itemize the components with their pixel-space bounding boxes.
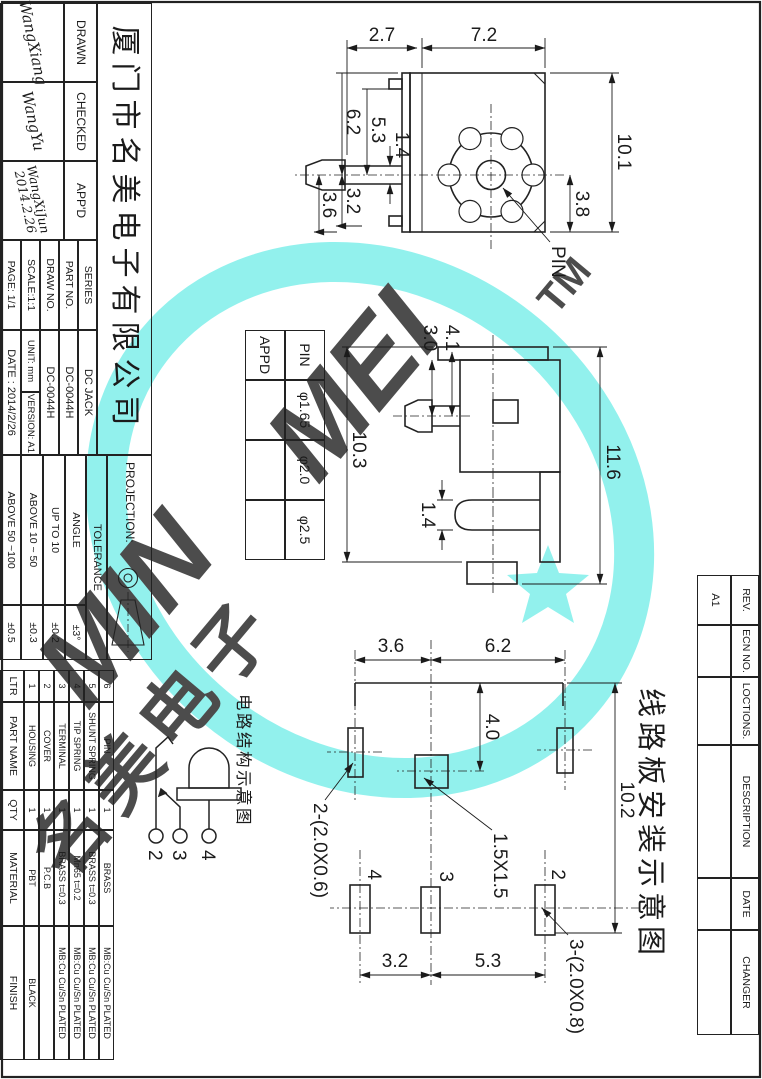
drawn-signature: WangXiang — [0, 3, 64, 82]
parts-item-row-qty: 1 — [99, 790, 114, 830]
checked-signature: WangYu — [0, 82, 64, 161]
tolerance-value-1: ±0.2 — [43, 605, 65, 660]
pcb-view-dimensions — [325, 660, 622, 975]
dim-11-6: 11.6 — [602, 444, 623, 480]
terminal-3-label: 3 — [168, 850, 189, 861]
checked-label: CHECKED — [64, 82, 97, 161]
dim-1-4a: 1.4 — [391, 132, 412, 159]
dim-6-2a: 6.2 — [342, 109, 363, 135]
parts-item-row-name: COVER — [39, 702, 54, 790]
date-value: DATE : 2014/2/26 — [0, 330, 21, 455]
parts-item-row-finish: BLACK — [24, 926, 39, 1060]
dim-3-8: 3.8 — [571, 191, 592, 217]
parts-item-row-material: BRASS t=0.3 — [54, 830, 69, 926]
side-view — [390, 335, 560, 595]
tolerance-value-3: ±0.5 — [0, 605, 21, 660]
dim-1-4b: 1.4 — [417, 502, 438, 529]
pin-table-empty-1 — [245, 380, 285, 440]
revision-header-4: DATE — [731, 878, 759, 930]
pin-table-d3: φ2.5 — [285, 500, 325, 560]
pad-3-label: 3 — [435, 871, 456, 882]
parts-item-row-qty: 1 — [84, 790, 99, 830]
drawing-sheet: MIN MEI TM 名美电子 厦门市名美电子有限公司 DRAWN CHECKE… — [0, 0, 762, 1079]
part-no-label: PART NO. — [59, 240, 78, 330]
parts-item-row-ltr: 6 — [99, 670, 114, 702]
pad-2-label: 2 — [547, 869, 568, 880]
draw-no-label: DRAW NO. — [40, 240, 59, 330]
tolerance-range-3: ABOVE 50 ~100 — [0, 455, 21, 605]
parts-item-row-material: BRASS t=0.3 — [84, 830, 99, 926]
revision-header-3: DESCRIPTION — [731, 745, 759, 878]
parts-item-row-qty: 1 — [69, 790, 84, 830]
projection-label: PROJECTION: — [123, 462, 136, 543]
parts-item-row-material: Mn65 t=0.2 — [69, 830, 84, 926]
pin-table-d1: φ1.65 — [285, 380, 325, 440]
parts-header-row-name: PART NAME — [0, 702, 24, 790]
parts-item-row-finish: MB:Cu Cu/Sn PLATED — [54, 926, 69, 1060]
slot-a-callout: 2-(2.0X0.6) — [309, 803, 330, 898]
parts-header-row-ltr: LTR — [0, 670, 24, 702]
checked-signature-text: WangYu — [18, 90, 46, 153]
dim-10-3: 10.3 — [348, 432, 369, 469]
tolerance-value-angle: ±3° — [65, 605, 86, 660]
pcb-view-dim-labels: 6.2 3.6 10.2 4.0 5.3 3.2 1.5X1.5 2-(2.0X… — [309, 636, 637, 1034]
revision-rev-value: A1 — [697, 575, 731, 625]
tolerance-header: TOLERANCE — [86, 455, 107, 660]
parts-item-row-finish: MB:Cu Cu/Sn PLATED — [84, 926, 99, 1060]
slot-b-callout: 3-(2.0X0.8) — [565, 939, 586, 1034]
tolerance-range-2: ABOVE 10 ~ 50 — [21, 455, 43, 605]
revision-header-2: LOCTIONS. — [731, 677, 759, 745]
circuit-diagram — [149, 737, 241, 843]
unit-value: UNIT: mm — [21, 330, 40, 392]
parts-item-row-finish — [39, 926, 54, 1060]
draw-no-value: DC-0044H — [40, 330, 59, 455]
appd-label: APP'D — [64, 161, 97, 240]
pad-4-label: 4 — [363, 869, 384, 880]
parts-header-row-finish: FINISH — [0, 926, 24, 1060]
revision-header-5: CHANGER — [731, 930, 759, 1035]
version-value: VERSION: A1 — [21, 392, 40, 455]
appd-signature-text: WangXiJun 2014.2.26 — [12, 164, 52, 237]
dim-6-2b: 6.2 — [485, 636, 511, 657]
parts-item-row-name: SHUNT SPRING — [84, 702, 99, 790]
tolerance-value-2: ±0.3 — [21, 605, 43, 660]
dim-3-2a: 3.2 — [342, 188, 363, 214]
series-label: SERIES — [78, 240, 97, 330]
revision-value-3 — [697, 745, 731, 878]
parts-item-row-qty: 1 — [24, 790, 39, 830]
dim-3-6b: 3.6 — [378, 636, 404, 657]
projection-cell: PROJECTION: — [107, 455, 152, 660]
parts-header-row-qty: QTY — [0, 790, 24, 830]
dim-7-2: 7.2 — [471, 25, 497, 46]
page-value: PAGE: 1/1 — [0, 240, 21, 330]
parts-item-row-qty: 1 — [39, 790, 54, 830]
pin-table-row1-label: PIN — [285, 330, 325, 380]
company-name: 厦门市名美电子有限公司 — [97, 3, 152, 455]
terminal-4-label: 4 — [197, 850, 218, 861]
pcb-view — [327, 640, 657, 985]
parts-item-row-ltr: 3 — [54, 670, 69, 702]
parts-item-row-name: TERMINAL — [54, 702, 69, 790]
revision-value-1 — [697, 625, 731, 677]
dim-10-1: 10.1 — [613, 134, 634, 171]
dim-5-3b: 5.3 — [475, 951, 501, 972]
tolerance-range-angle: ANGLE — [65, 455, 86, 605]
series-value: DC JACK — [78, 330, 97, 455]
side-view-dim-labels: 11.6 10.3 4.1 3.0 1.4 — [348, 325, 623, 529]
pin-callout: PIN — [547, 246, 568, 278]
pcb-view-title: 线路板安装示意图 — [632, 688, 674, 960]
pin-table-d2: φ2.0 — [285, 440, 325, 500]
parts-item-row-ltr: 1 — [24, 670, 39, 702]
front-view — [294, 73, 564, 250]
drawn-label: DRAWN — [64, 3, 97, 82]
parts-item-row-name: TIP SPRING — [69, 702, 84, 790]
pin-table-empty-2 — [245, 440, 285, 500]
pin-table-row2-label: APPD — [245, 330, 285, 380]
appd-signature: WangXiJun 2014.2.26 — [0, 161, 64, 240]
parts-item-row-name: PIN — [99, 702, 114, 790]
side-view-dimensions — [342, 347, 607, 584]
parts-item-row-material: P.C.B — [39, 830, 54, 926]
revision-value-2 — [697, 677, 731, 745]
dim-2-7: 2.7 — [369, 25, 395, 46]
dim-3-6a: 3.6 — [318, 192, 339, 218]
hole-callout: 1.5X1.5 — [489, 833, 510, 899]
dim-3-2b: 3.2 — [382, 951, 408, 972]
parts-header-row-material: MATERIAL — [0, 830, 24, 926]
front-view-dimensions — [314, 38, 619, 242]
parts-item-row-ltr: 5 — [84, 670, 99, 702]
revision-value-5 — [697, 930, 731, 1035]
parts-item-row-finish: MB:Cu Cu/Sn PLATED — [99, 926, 114, 1060]
dim-4-1: 4.1 — [441, 325, 462, 351]
parts-item-row-ltr: 2 — [39, 670, 54, 702]
tolerance-range-1: UP TO 10 — [43, 455, 65, 605]
parts-item-row-qty: 1 — [54, 790, 69, 830]
circuit-labels: 4 3 2 — [144, 850, 218, 861]
parts-item-row-material: BRASS — [99, 830, 114, 926]
drawn-signature-text: WangXiang — [15, 0, 48, 86]
parts-item-row-finish: MB:Cu Cu/Sn PLATED — [69, 926, 84, 1060]
terminal-2-label: 2 — [144, 850, 165, 861]
front-view-dim-labels: 10.1 3.8 7.2 2.7 1.4 5.3 6.2 3.2 3.6 PIN — [318, 25, 634, 278]
dim-3-0: 3.0 — [419, 325, 440, 351]
circuit-title: 电路结构示意图 — [233, 694, 257, 827]
revision-header-1: ECN NO. — [731, 625, 759, 677]
landscape-sheet: 厦门市名美电子有限公司 DRAWN CHECKED APP'D WangXian… — [0, 0, 762, 1079]
pin-table-empty-3 — [245, 500, 285, 560]
part-no-value: DC-0044H — [59, 330, 78, 455]
parts-item-row-name: HOUSING — [24, 702, 39, 790]
revision-value-4 — [697, 878, 731, 930]
dim-5-3a: 5.3 — [367, 117, 388, 143]
dim-4-0: 4.0 — [481, 714, 502, 740]
parts-item-row-ltr: 4 — [69, 670, 84, 702]
parts-item-row-material: PBT — [24, 830, 39, 926]
scale-value: SCALE:1:1 — [21, 240, 40, 330]
revision-header-0: REV. — [731, 575, 759, 625]
